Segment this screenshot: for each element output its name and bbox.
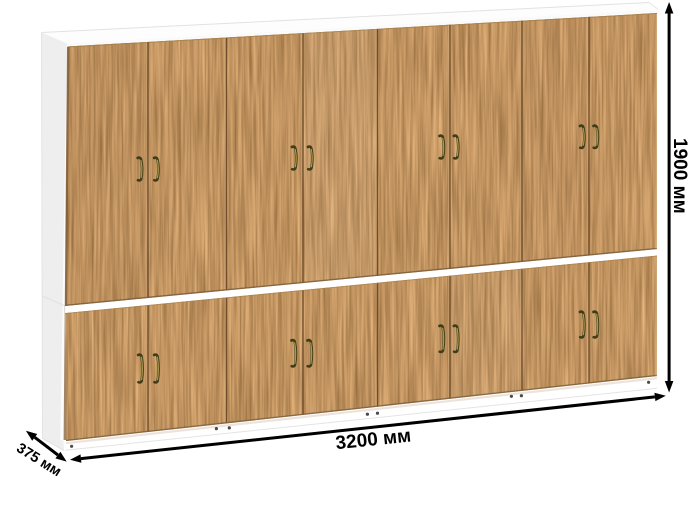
svg-text:1900 мм: 1900 мм (669, 138, 690, 214)
